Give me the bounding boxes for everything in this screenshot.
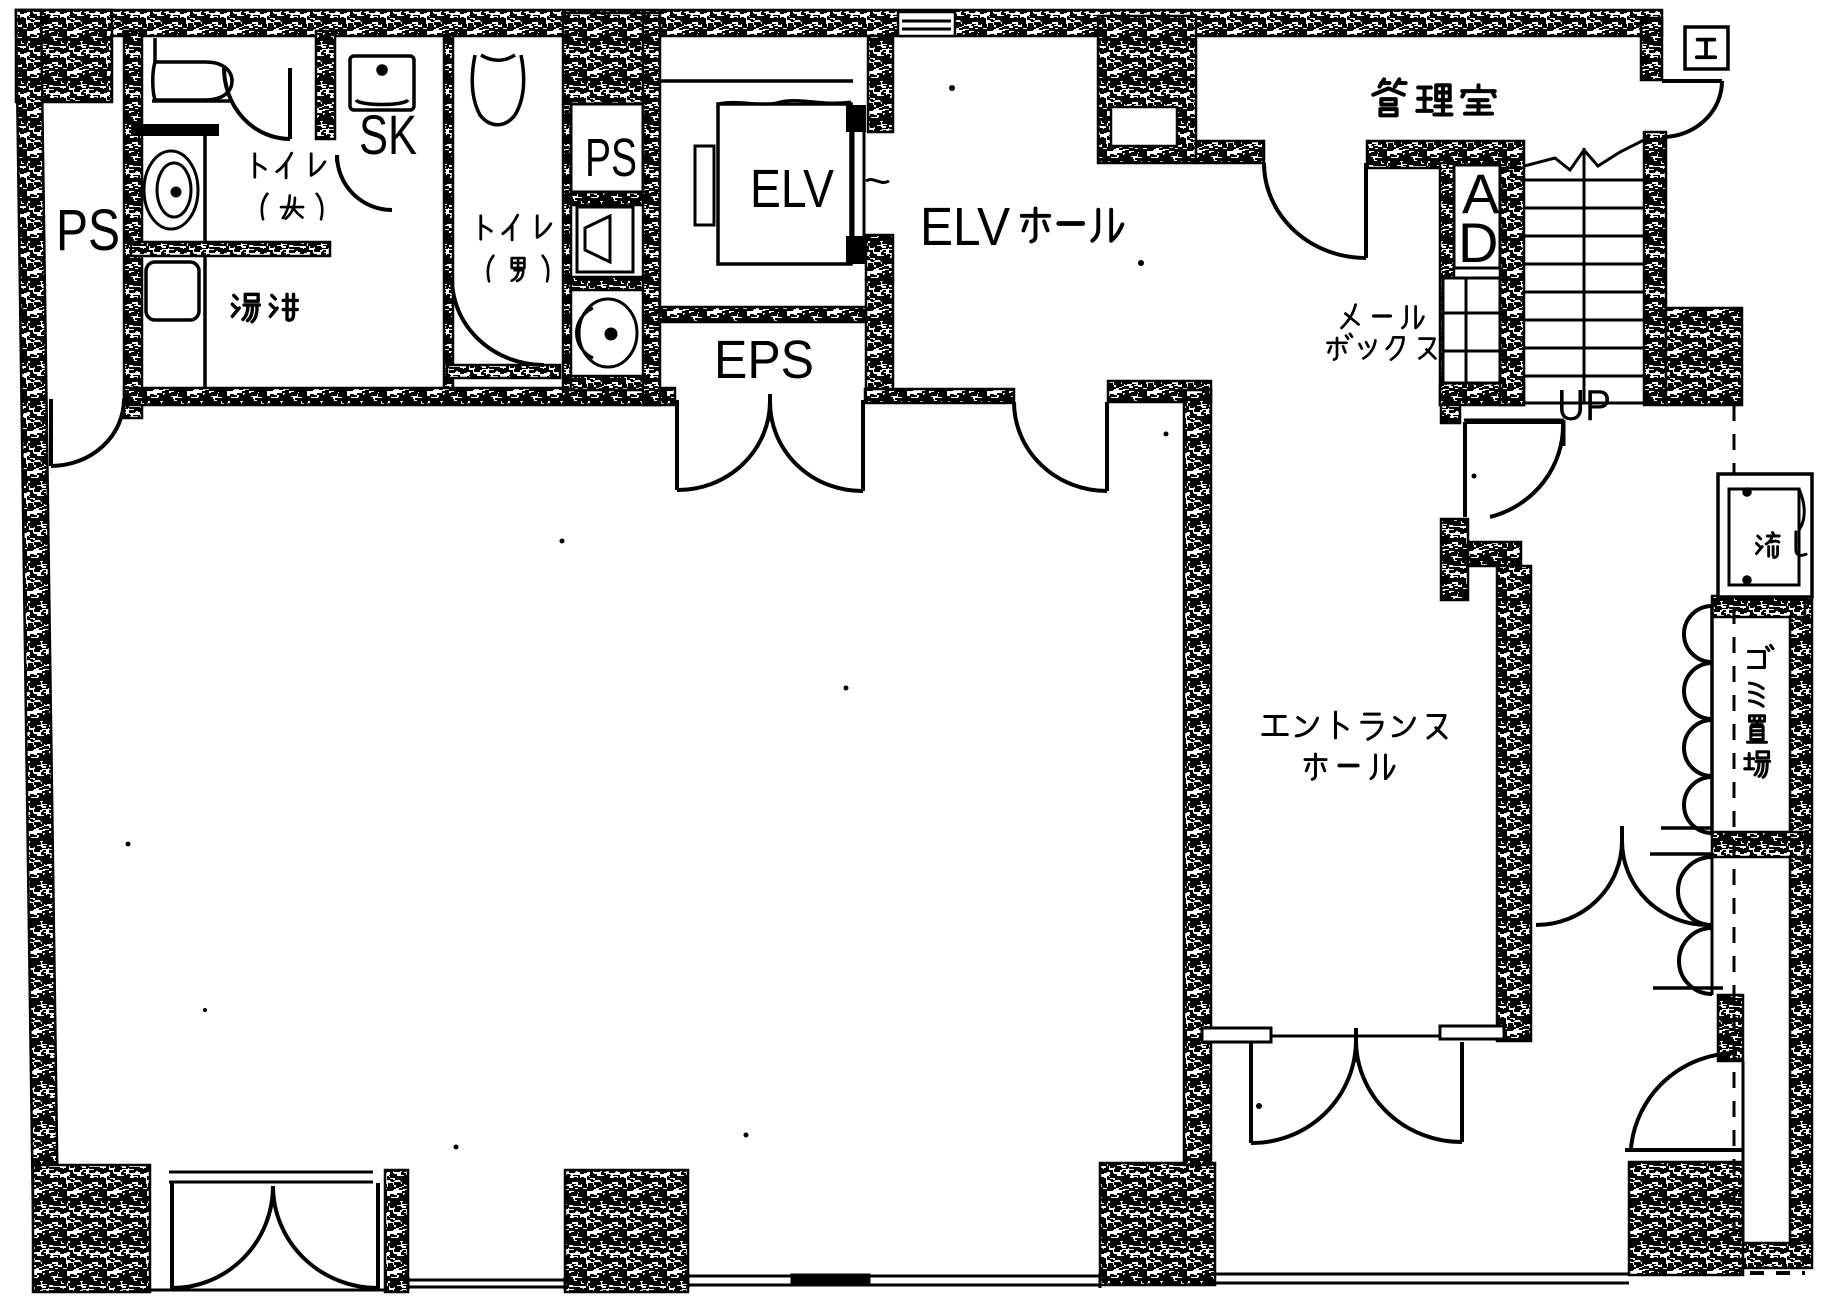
svg-text:D: D — [1458, 211, 1498, 274]
svg-text:EPS: EPS — [714, 330, 814, 390]
svg-text:UP: UP — [1557, 381, 1611, 430]
svg-text:ELV: ELV — [920, 197, 1010, 257]
svg-text:PS: PS — [56, 198, 120, 263]
svg-text:ELV: ELV — [750, 159, 834, 219]
svg-text:SK: SK — [359, 103, 417, 166]
svg-text:PS: PS — [585, 128, 637, 188]
